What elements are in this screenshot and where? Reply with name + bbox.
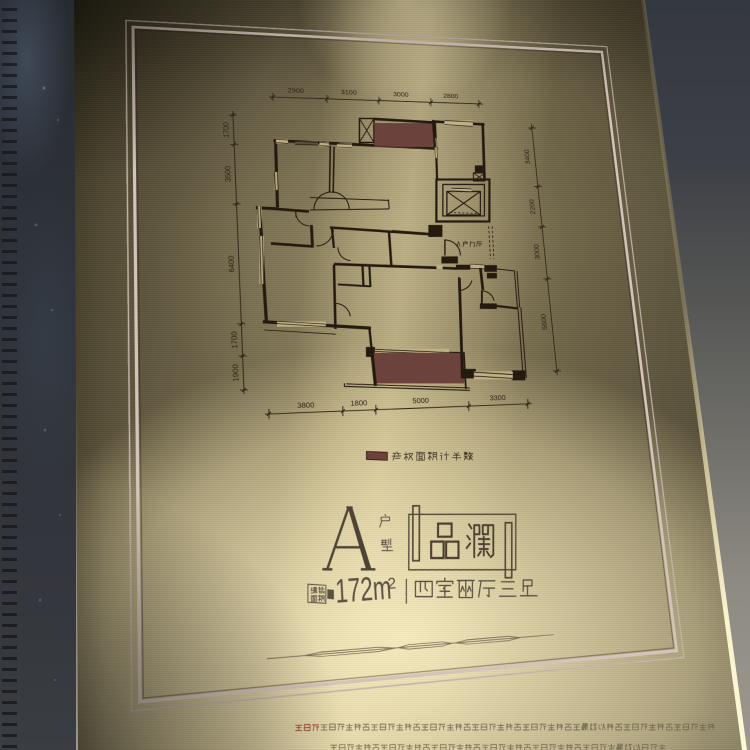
svg-text:3000: 3000 xyxy=(532,244,542,259)
svg-text:172m: 172m xyxy=(334,569,392,611)
svg-text:2: 2 xyxy=(387,575,397,594)
svg-text:2900: 2900 xyxy=(288,86,305,95)
svg-text:1900: 1900 xyxy=(230,364,240,382)
svg-text:3100: 3100 xyxy=(341,88,357,97)
svg-text:3400: 3400 xyxy=(522,149,532,164)
svg-text:1700: 1700 xyxy=(221,122,231,138)
svg-text:3500: 3500 xyxy=(223,166,233,182)
svg-text:3800: 3800 xyxy=(297,400,315,410)
svg-text:3000: 3000 xyxy=(393,90,409,99)
svg-text:2200: 2200 xyxy=(527,199,537,214)
svg-text:5000: 5000 xyxy=(412,395,429,405)
svg-text:1700: 1700 xyxy=(229,331,239,348)
svg-text:6400: 6400 xyxy=(226,256,236,273)
svg-text:1800: 1800 xyxy=(350,398,368,408)
svg-text:2800: 2800 xyxy=(443,91,459,100)
svg-text:5600: 5600 xyxy=(539,314,549,330)
svg-text:3300: 3300 xyxy=(489,393,506,403)
